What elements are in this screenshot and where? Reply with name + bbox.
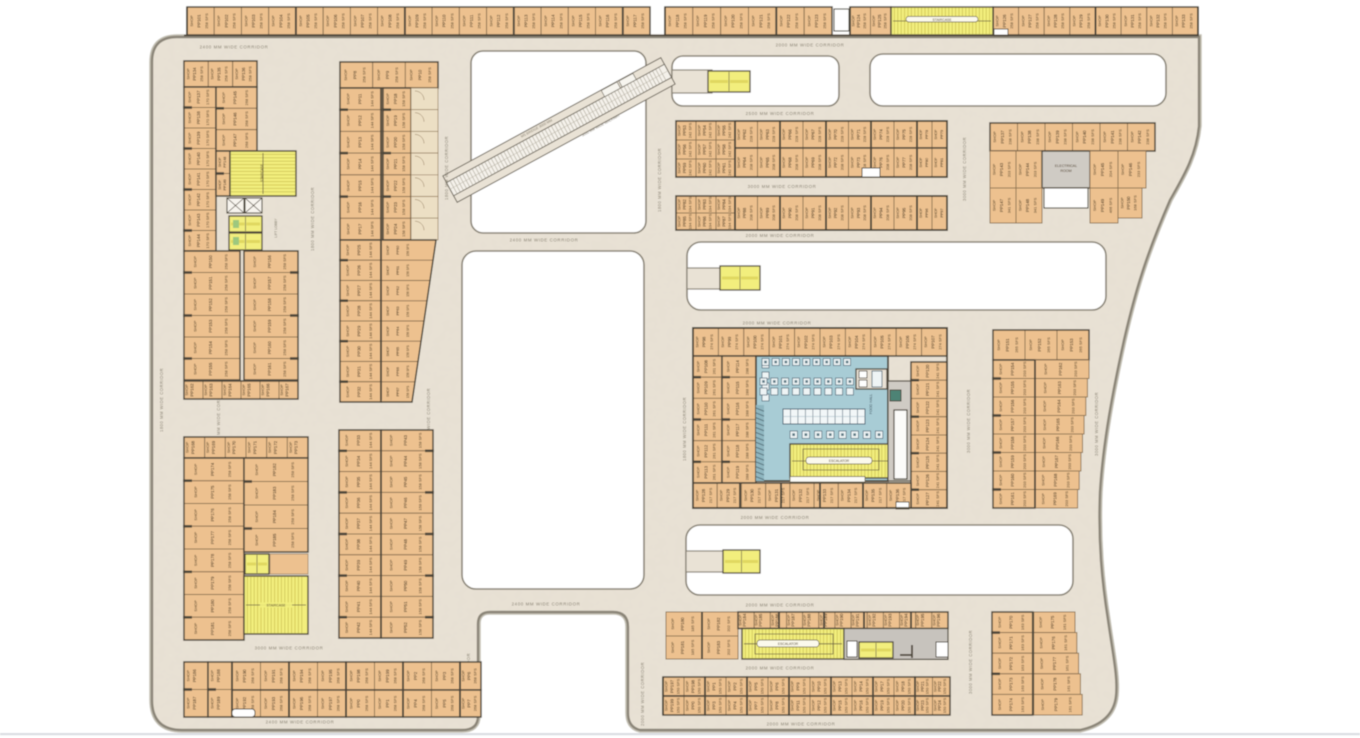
svg-text:SHOP: SHOP xyxy=(193,486,198,498)
svg-text:PP112: PP112 xyxy=(496,14,501,27)
svg-text:258 SFS: 258 SFS xyxy=(1188,13,1193,29)
svg-text:268 SFS: 268 SFS xyxy=(364,668,369,684)
svg-text:PP62: PP62 xyxy=(742,129,747,140)
svg-text:161 SFS: 161 SFS xyxy=(1062,614,1067,630)
svg-text:PP45: PP45 xyxy=(403,476,408,487)
svg-text:PP124: PP124 xyxy=(856,14,861,28)
svg-text:SHOP: SHOP xyxy=(260,384,265,396)
svg-text:265 SFS: 265 SFS xyxy=(1014,337,1019,353)
svg-text:SHOP: SHOP xyxy=(345,366,350,378)
svg-text:PP143: PP143 xyxy=(196,213,201,227)
svg-text:SHOP: SHOP xyxy=(210,68,215,80)
svg-text:265 SFS: 265 SFS xyxy=(1078,337,1083,353)
svg-text:PP60: PP60 xyxy=(396,246,400,255)
svg-text:258 SFS: 258 SFS xyxy=(1112,13,1117,29)
svg-text:PP140: PP140 xyxy=(196,152,201,166)
svg-text:SHOP: SHOP xyxy=(874,681,879,693)
svg-text:FOOD HALL: FOOD HALL xyxy=(869,394,873,414)
svg-text:258 SFS: 258 SFS xyxy=(282,297,287,313)
svg-text:PP189: PP189 xyxy=(216,696,221,710)
svg-text:PP143: PP143 xyxy=(999,162,1004,176)
svg-text:208 SFS: 208 SFS xyxy=(840,205,845,221)
svg-text:SHOP: SHOP xyxy=(716,125,721,137)
svg-text:PP67: PP67 xyxy=(396,387,400,396)
svg-text:PP66: PP66 xyxy=(396,367,400,376)
svg-text:258 SFS: 258 SFS xyxy=(227,507,232,523)
svg-text:170 SFS: 170 SFS xyxy=(205,151,210,167)
svg-text:242 SFS: 242 SFS xyxy=(727,160,732,176)
svg-text:PP125: PP125 xyxy=(877,14,882,28)
svg-text:SHOP: SHOP xyxy=(748,681,753,693)
svg-text:PP128: PP128 xyxy=(1053,14,1058,28)
svg-text:258 SFS: 258 SFS xyxy=(227,620,232,636)
svg-text:PP137: PP137 xyxy=(196,90,201,104)
svg-text:SHOP: SHOP xyxy=(716,199,721,211)
svg-text:SHOP: SHOP xyxy=(344,518,349,530)
svg-text:261 SFS: 261 SFS xyxy=(712,422,717,438)
svg-text:258 SFS: 258 SFS xyxy=(259,13,264,29)
svg-text:PP106: PP106 xyxy=(905,335,910,349)
svg-text:PP90: PP90 xyxy=(788,207,793,218)
svg-text:SHOP: SHOP xyxy=(263,670,268,682)
svg-text:258 SFS: 258 SFS xyxy=(1137,13,1142,29)
svg-text:150 SFS: 150 SFS xyxy=(801,678,806,694)
svg-text:STAIRCASE: STAIRCASE xyxy=(267,603,287,607)
svg-text:258 SFS: 258 SFS xyxy=(531,13,536,29)
svg-text:PP168: PP168 xyxy=(1053,473,1058,487)
svg-text:163 SFS: 163 SFS xyxy=(1020,635,1025,651)
svg-text:144 SFS: 144 SFS xyxy=(368,536,373,552)
svg-text:3000 MM WIDE CORRIDOR: 3000 MM WIDE CORRIDOR xyxy=(966,389,971,453)
svg-text:158 SFS: 158 SFS xyxy=(418,599,423,615)
svg-text:SHOP: SHOP xyxy=(864,490,869,502)
svg-text:SHOP: SHOP xyxy=(388,518,393,530)
svg-text:258 SFS: 258 SFS xyxy=(683,13,688,29)
svg-text:258 SFS: 258 SFS xyxy=(290,485,295,501)
svg-text:185 SFS: 185 SFS xyxy=(690,639,695,655)
svg-text:SHOP: SHOP xyxy=(263,698,268,710)
svg-text:163 SFS: 163 SFS xyxy=(1020,614,1025,630)
svg-text:208 SFS: 208 SFS xyxy=(885,205,890,221)
svg-text:241 SFS: 241 SFS xyxy=(935,472,940,488)
svg-text:PP4: PP4 xyxy=(413,699,418,708)
svg-text:PP159: PP159 xyxy=(1010,455,1015,469)
svg-text:SHOP: SHOP xyxy=(759,129,764,141)
svg-text:202 SFS: 202 SFS xyxy=(726,616,731,632)
svg-text:SHOP: SHOP xyxy=(344,476,349,488)
svg-text:241 SFS: 241 SFS xyxy=(935,381,940,397)
svg-text:SHOP: SHOP xyxy=(919,207,923,218)
svg-text:SHOP: SHOP xyxy=(1040,493,1045,505)
svg-text:242 SFS: 242 SFS xyxy=(708,160,713,176)
svg-text:238 SFS: 238 SFS xyxy=(1118,129,1123,145)
svg-text:170 SFS: 170 SFS xyxy=(205,89,210,105)
svg-text:PP8: PP8 xyxy=(352,70,357,79)
svg-text:PP9: PP9 xyxy=(796,682,801,691)
svg-text:144 SFS: 144 SFS xyxy=(368,262,373,278)
svg-text:PP48: PP48 xyxy=(403,538,408,549)
svg-text:150 SFS: 150 SFS xyxy=(696,678,701,694)
svg-text:SHOP: SHOP xyxy=(915,420,920,432)
svg-text:203 SFS: 203 SFS xyxy=(1072,380,1077,396)
svg-text:SHOP: SHOP xyxy=(997,637,1002,649)
svg-text:SHOP: SHOP xyxy=(771,336,776,348)
svg-text:SHOP: SHOP xyxy=(489,15,494,27)
svg-text:SHOP: SHOP xyxy=(388,601,393,613)
svg-text:SHOP: SHOP xyxy=(252,363,257,375)
svg-text:208 SFS: 208 SFS xyxy=(885,154,890,170)
svg-text:PP158: PP158 xyxy=(267,298,272,312)
svg-text:PP14: PP14 xyxy=(859,681,864,692)
svg-text:SHOP: SHOP xyxy=(279,384,284,396)
svg-text:PP25: PP25 xyxy=(357,244,362,255)
svg-text:SHOP: SHOP xyxy=(827,129,832,141)
svg-text:SHOP: SHOP xyxy=(386,366,390,377)
svg-text:150 SFS: 150 SFS xyxy=(864,697,869,713)
svg-text:PP166: PP166 xyxy=(1055,436,1060,450)
svg-text:144 SFS: 144 SFS xyxy=(368,323,373,339)
svg-text:SHOP: SHOP xyxy=(727,681,732,693)
svg-text:208 SFS: 208 SFS xyxy=(908,154,913,170)
svg-text:258 SFS: 258 SFS xyxy=(1163,13,1168,29)
svg-text:SHOP: SHOP xyxy=(461,15,466,27)
svg-text:PP152: PP152 xyxy=(1037,338,1042,352)
svg-text:158 SFS: 158 SFS xyxy=(418,515,423,531)
svg-text:3000 MM WIDE CORRIDOR: 3000 MM WIDE CORRIDOR xyxy=(962,137,967,201)
svg-text:SHOP: SHOP xyxy=(1174,15,1179,27)
svg-text:SHOP: SHOP xyxy=(570,15,575,27)
svg-text:158 SFS: 158 SFS xyxy=(401,156,406,172)
svg-text:PP153: PP153 xyxy=(1069,338,1074,352)
svg-text:SHOP: SHOP xyxy=(407,15,412,27)
svg-text:PP14: PP14 xyxy=(358,158,363,169)
svg-text:PP64: PP64 xyxy=(396,327,400,336)
svg-text:PP125: PP125 xyxy=(925,455,930,469)
svg-text:241 SFS: 241 SFS xyxy=(935,454,940,470)
svg-text:150 SFS: 150 SFS xyxy=(780,697,785,713)
svg-text:258 SFS: 258 SFS xyxy=(738,13,743,29)
svg-text:466 SFS: 466 SFS xyxy=(1108,197,1113,213)
svg-text:SHOP: SHOP xyxy=(345,386,350,398)
svg-text:268 SFS: 268 SFS xyxy=(307,695,312,711)
svg-text:238 SFS: 238 SFS xyxy=(1145,129,1150,145)
svg-text:PP144: PP144 xyxy=(196,234,201,248)
svg-text:PP131: PP131 xyxy=(1130,14,1135,28)
svg-text:274 SFS: 274 SFS xyxy=(887,334,892,350)
svg-text:258 SFS: 258 SFS xyxy=(504,13,509,29)
svg-text:PP83: PP83 xyxy=(702,199,707,210)
svg-text:PP123: PP123 xyxy=(925,419,930,433)
svg-text:PP172: PP172 xyxy=(1009,656,1014,670)
svg-text:150 SFS: 150 SFS xyxy=(864,678,869,694)
svg-text:PP13: PP13 xyxy=(838,681,843,692)
svg-text:258 SFS: 258 SFS xyxy=(232,13,237,29)
svg-text:144 SFS: 144 SFS xyxy=(368,578,373,594)
svg-text:PP58: PP58 xyxy=(722,144,727,155)
svg-text:SHOP: SHOP xyxy=(461,698,466,710)
svg-text:3000 MM WIDE CORRIDOR: 3000 MM WIDE CORRIDOR xyxy=(1094,392,1099,456)
svg-text:158 SFS: 158 SFS xyxy=(418,432,423,448)
svg-text:341 SFS: 341 SFS xyxy=(1006,197,1011,213)
svg-text:PP195: PP195 xyxy=(328,669,333,683)
svg-text:PP5: PP5 xyxy=(442,699,447,708)
svg-text:PP1: PP1 xyxy=(385,699,390,708)
svg-text:PP133: PP133 xyxy=(1181,14,1186,28)
svg-text:PP37: PP37 xyxy=(356,518,361,529)
svg-text:PP85: PP85 xyxy=(682,216,687,227)
svg-text:SHOP: SHOP xyxy=(346,93,351,105)
svg-text:SHOP: SHOP xyxy=(1102,131,1107,143)
svg-text:PP127: PP127 xyxy=(925,492,930,506)
svg-text:PP52: PP52 xyxy=(403,622,408,633)
svg-text:SHOP: SHOP xyxy=(234,670,239,682)
svg-text:268 SFS: 268 SFS xyxy=(279,668,284,684)
svg-text:258 SFS: 258 SFS xyxy=(422,13,427,29)
svg-text:258 SFS: 258 SFS xyxy=(282,254,287,270)
svg-text:238 SFS: 238 SFS xyxy=(1090,129,1095,145)
svg-text:PP194: PP194 xyxy=(299,669,304,683)
svg-text:PP102: PP102 xyxy=(803,335,808,349)
svg-text:SHOP: SHOP xyxy=(346,158,351,170)
svg-text:150 SFS: 150 SFS xyxy=(717,678,722,694)
svg-text:SHOP: SHOP xyxy=(676,125,681,137)
svg-text:258 SFS: 258 SFS xyxy=(427,67,432,83)
svg-text:PP86: PP86 xyxy=(702,216,707,227)
svg-text:158 SFS: 158 SFS xyxy=(401,91,406,107)
svg-text:258 SFS: 258 SFS xyxy=(1060,13,1065,29)
svg-text:PP153: PP153 xyxy=(208,319,213,333)
svg-text:SHOP: SHOP xyxy=(676,216,681,228)
svg-text:203 SFS: 203 SFS xyxy=(1022,361,1027,377)
svg-text:SHOP: SHOP xyxy=(385,136,390,148)
svg-text:158 SFS: 158 SFS xyxy=(401,112,406,128)
svg-text:258 SFS: 258 SFS xyxy=(368,13,373,29)
svg-text:SHOP: SHOP xyxy=(781,157,786,169)
svg-text:SHOP: SHOP xyxy=(344,601,349,613)
svg-text:268 SFS: 268 SFS xyxy=(244,90,249,106)
svg-text:SHOP: SHOP xyxy=(247,442,252,454)
svg-text:SHOP: SHOP xyxy=(676,144,681,156)
svg-text:2000 MM WIDE CORRIDOR: 2000 MM WIDE CORRIDOR xyxy=(746,233,815,238)
svg-text:PP3: PP3 xyxy=(712,701,717,710)
svg-text:1800 MM WIDE CORRIDOR: 1800 MM WIDE CORRIDOR xyxy=(444,136,449,200)
svg-text:PP129: PP129 xyxy=(725,488,730,502)
svg-text:PP180: PP180 xyxy=(210,599,215,613)
svg-text:SHOP: SHOP xyxy=(811,700,816,712)
svg-text:194 SFS: 194 SFS xyxy=(727,196,732,212)
svg-text:SHOP: SHOP xyxy=(252,320,257,332)
svg-text:SHOP: SHOP xyxy=(377,698,382,710)
svg-text:SHOP: SHOP xyxy=(386,285,390,296)
svg-text:268 SFS: 268 SFS xyxy=(421,695,426,711)
svg-text:274 SFS: 274 SFS xyxy=(861,334,866,350)
svg-text:SHOP: SHOP xyxy=(791,490,796,502)
svg-text:PP146: PP146 xyxy=(1128,162,1133,176)
svg-text:228 SFS: 228 SFS xyxy=(771,126,776,142)
svg-text:144 SFS: 144 SFS xyxy=(368,363,373,379)
svg-text:258 SFS: 258 SFS xyxy=(362,67,367,83)
svg-text:SHOP: SHOP xyxy=(915,438,920,450)
svg-text:SHOP: SHOP xyxy=(386,325,390,336)
svg-text:PP137: PP137 xyxy=(1000,130,1005,144)
svg-text:PP110: PP110 xyxy=(704,402,709,415)
svg-text:1800 MM WIDE CORRIDOR: 1800 MM WIDE CORRIDOR xyxy=(310,187,315,251)
svg-text:163 SFS: 163 SFS xyxy=(1020,697,1025,713)
svg-text:SHOP: SHOP xyxy=(254,511,259,523)
svg-text:PP104: PP104 xyxy=(278,14,283,28)
svg-text:203 SFS: 203 SFS xyxy=(1071,398,1076,414)
svg-text:SHOP: SHOP xyxy=(187,194,192,206)
svg-text:PP192: PP192 xyxy=(242,696,247,710)
svg-text:SHOP: SHOP xyxy=(234,698,239,710)
svg-text:PP19: PP19 xyxy=(880,700,885,711)
svg-text:2400 MM WIDE CORRIDOR: 2400 MM WIDE CORRIDOR xyxy=(200,45,269,50)
svg-text:PP99: PP99 xyxy=(727,336,732,347)
svg-text:SHOP: SHOP xyxy=(1020,15,1025,27)
svg-text:PP193: PP193 xyxy=(888,613,893,627)
svg-text:PP142: PP142 xyxy=(196,193,201,207)
svg-text:PP149: PP149 xyxy=(223,179,227,190)
svg-text:SHOP: SHOP xyxy=(409,69,414,81)
svg-text:SHOP: SHOP xyxy=(461,670,466,682)
svg-text:SHOP: SHOP xyxy=(388,622,393,634)
svg-text:258 SFS: 258 SFS xyxy=(286,13,291,29)
svg-text:SHOP: SHOP xyxy=(694,490,699,502)
svg-text:158 SFS: 158 SFS xyxy=(418,453,423,469)
svg-text:PP10: PP10 xyxy=(817,681,822,692)
svg-text:PP164: PP164 xyxy=(1056,399,1061,413)
svg-text:228 SFS: 228 SFS xyxy=(885,126,890,142)
svg-text:268 SFS: 268 SFS xyxy=(450,695,455,711)
svg-text:SHOP: SHOP xyxy=(434,670,439,682)
svg-text:150 SFS: 150 SFS xyxy=(780,678,785,694)
svg-text:SHOP: SHOP xyxy=(743,490,748,502)
svg-text:PP131: PP131 xyxy=(774,488,779,502)
svg-text:PP187: PP187 xyxy=(791,613,796,627)
svg-text:SHOP: SHOP xyxy=(676,162,681,174)
svg-text:PP56: PP56 xyxy=(682,144,687,155)
svg-text:SHOP: SHOP xyxy=(405,670,410,682)
svg-text:PP132: PP132 xyxy=(1156,14,1161,28)
svg-text:144 SFS: 144 SFS xyxy=(368,384,373,400)
svg-text:PP129: PP129 xyxy=(1079,14,1084,28)
svg-text:PP169: PP169 xyxy=(211,440,216,454)
svg-text:SHOP: SHOP xyxy=(1130,131,1135,143)
svg-text:PP60: PP60 xyxy=(702,162,707,173)
svg-text:SHOP: SHOP xyxy=(759,157,764,169)
svg-text:SHOP: SHOP xyxy=(187,132,192,144)
svg-text:PP38: PP38 xyxy=(356,538,361,549)
svg-text:PP62: PP62 xyxy=(396,286,400,295)
svg-text:SHOP: SHOP xyxy=(726,382,731,394)
svg-text:204 SFS: 204 SFS xyxy=(1108,161,1113,177)
svg-text:SHOP: SHOP xyxy=(997,699,1002,711)
svg-text:SHOP: SHOP xyxy=(934,129,938,140)
svg-text:PP197: PP197 xyxy=(328,696,333,710)
svg-text:SHOP: SHOP xyxy=(192,342,197,354)
svg-text:SHOP: SHOP xyxy=(388,559,393,571)
svg-text:158 SFS: 158 SFS xyxy=(418,619,423,635)
svg-text:144 SFS: 144 SFS xyxy=(370,178,375,194)
svg-text:PP136: PP136 xyxy=(895,488,900,502)
svg-text:PP32: PP32 xyxy=(357,386,362,397)
svg-text:PP20: PP20 xyxy=(393,136,398,147)
svg-text:203 SFS: 203 SFS xyxy=(1073,361,1078,377)
svg-text:ELECTRICAL: ELECTRICAL xyxy=(1055,164,1077,168)
svg-text:PP116: PP116 xyxy=(735,402,740,415)
svg-text:2000 MM WIDE CORRIDOR: 2000 MM WIDE CORRIDOR xyxy=(767,722,836,727)
svg-text:SHOP: SHOP xyxy=(827,207,832,219)
svg-text:SHOP: SHOP xyxy=(706,700,711,712)
svg-text:SHOP: SHOP xyxy=(992,164,997,176)
svg-text:274 SFS: 274 SFS xyxy=(709,334,714,350)
svg-text:SHOP: SHOP xyxy=(218,179,222,190)
svg-text:144 SFS: 144 SFS xyxy=(368,495,373,511)
svg-text:SHOP: SHOP xyxy=(291,698,296,710)
svg-text:SHOP: SHOP xyxy=(872,207,877,219)
svg-text:SHOP: SHOP xyxy=(1123,15,1128,27)
svg-text:PP170: PP170 xyxy=(1009,615,1014,629)
svg-text:150 SFS: 150 SFS xyxy=(906,697,911,713)
svg-text:SHOP: SHOP xyxy=(377,670,382,682)
svg-text:SHOP: SHOP xyxy=(726,466,731,478)
svg-text:SHOP: SHOP xyxy=(874,700,879,712)
svg-text:SHOP: SHOP xyxy=(767,490,772,502)
svg-text:SHOP: SHOP xyxy=(1043,382,1048,394)
svg-text:PP115: PP115 xyxy=(578,14,583,27)
svg-text:PP72: PP72 xyxy=(833,157,838,168)
svg-text:150 SFS: 150 SFS xyxy=(675,697,680,713)
svg-text:SHOP: SHOP xyxy=(850,157,855,169)
svg-text:PP97: PP97 xyxy=(940,208,944,217)
svg-text:258 SFS: 258 SFS xyxy=(290,532,295,548)
svg-text:SHOP: SHOP xyxy=(254,487,259,499)
svg-text:SHOP: SHOP xyxy=(346,136,351,148)
svg-text:150 SFS: 150 SFS xyxy=(925,697,930,713)
svg-text:PP174: PP174 xyxy=(210,462,215,476)
svg-text:PP19: PP19 xyxy=(393,115,398,126)
svg-text:203 SFS: 203 SFS xyxy=(1064,491,1069,507)
svg-text:PP196: PP196 xyxy=(936,613,941,627)
svg-text:PP199: PP199 xyxy=(670,698,675,712)
svg-text:261 SFS: 261 SFS xyxy=(712,443,717,459)
svg-text:SHOP: SHOP xyxy=(320,670,325,682)
svg-text:158 SFS: 158 SFS xyxy=(406,284,410,296)
svg-text:SHOP: SHOP xyxy=(187,235,192,247)
svg-text:SHOP: SHOP xyxy=(385,223,390,235)
svg-text:268 SFS: 268 SFS xyxy=(364,695,369,711)
svg-text:PP162: PP162 xyxy=(1058,362,1063,376)
svg-text:SHOP: SHOP xyxy=(385,115,390,127)
svg-text:PP188: PP188 xyxy=(216,669,221,683)
svg-text:SHOP: SHOP xyxy=(748,700,753,712)
svg-text:PP176: PP176 xyxy=(210,508,215,522)
svg-text:2500 MM WIDE CORRIDOR: 2500 MM WIDE CORRIDOR xyxy=(746,111,815,116)
svg-text:258 SFS: 258 SFS xyxy=(1035,13,1040,29)
svg-text:SHOP: SHOP xyxy=(723,15,728,27)
svg-text:SHOP: SHOP xyxy=(209,670,214,682)
svg-text:PP18: PP18 xyxy=(393,93,398,104)
svg-text:SHOP: SHOP xyxy=(696,162,701,174)
svg-text:PP1: PP1 xyxy=(712,682,717,691)
svg-text:PP114: PP114 xyxy=(551,14,556,27)
svg-text:150 SFS: 150 SFS xyxy=(759,697,764,713)
svg-text:SHOP: SHOP xyxy=(344,497,349,509)
svg-text:258 SFS: 258 SFS xyxy=(883,13,888,29)
svg-text:SHOP: SHOP xyxy=(790,700,795,712)
svg-text:SHOP: SHOP xyxy=(252,342,257,354)
svg-text:208 SFS: 208 SFS xyxy=(794,154,799,170)
